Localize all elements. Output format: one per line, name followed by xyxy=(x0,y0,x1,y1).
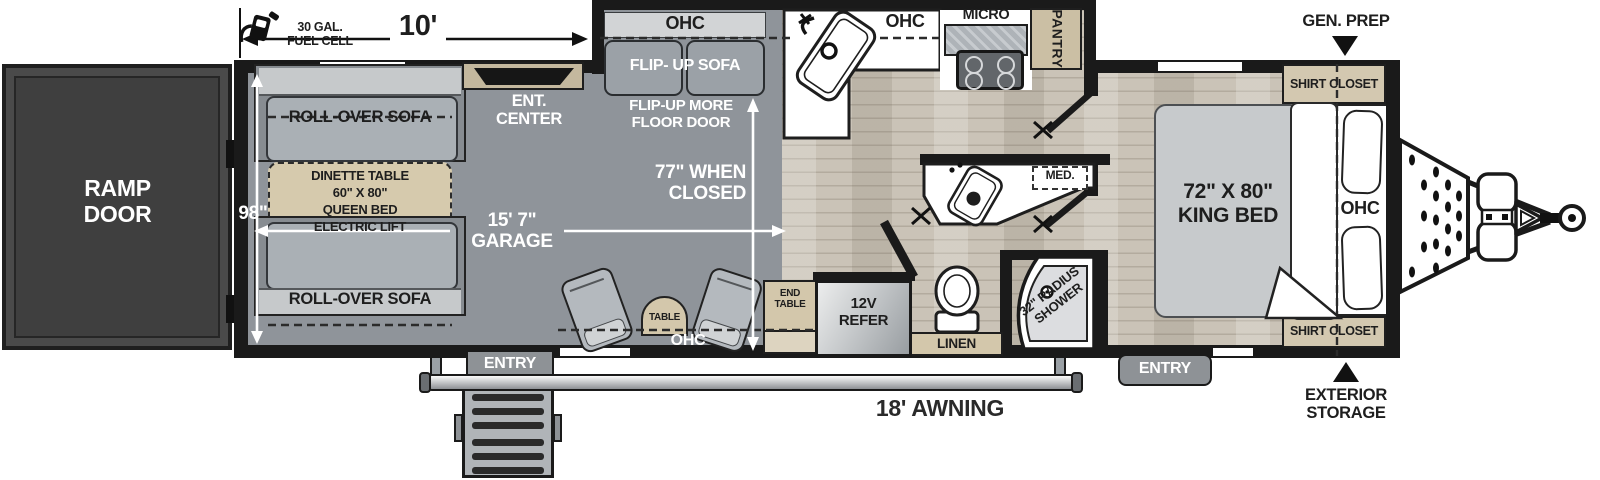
refer-label: 12V REFER xyxy=(815,296,912,330)
entry-bedroom-label: ENTRY xyxy=(1118,360,1212,378)
end-table-label: END TABLE xyxy=(763,288,817,310)
kitchen-ohc-label: OHC xyxy=(876,11,934,31)
shirt-closet-bottom-label: SHIRT CLOSET xyxy=(1282,324,1386,338)
dinette-label: DINETTE TABLE 60" X 80" QUEEN BED ELECTR… xyxy=(270,168,450,236)
dim-garage-label: 15' 7" GARAGE xyxy=(452,210,572,253)
table-label: TABLE xyxy=(642,312,687,323)
ent-center-label: ENT. CENTER xyxy=(464,92,594,129)
gen-prep-arrow-icon xyxy=(1332,36,1358,56)
rollover-sofa-top-label: ROLL-OVER SOFA xyxy=(276,108,444,126)
dim-10ft-label: 10' xyxy=(392,10,444,42)
fuel-cell-label: 30 GAL. FUEL CELL xyxy=(272,20,368,48)
floorplan-canvas: PANTRY xyxy=(0,0,1600,480)
micro-label: MICRO xyxy=(944,7,1028,23)
bed-fold xyxy=(1266,268,1340,318)
bedroom-ohc-label: OHC xyxy=(1334,198,1386,218)
king-bed-label: 72" X 80" KING BED xyxy=(1158,180,1298,227)
dim-98in-label: 98" xyxy=(231,203,275,224)
ramp-door-label: RAMP DOOR xyxy=(60,176,175,228)
exterior-storage-arrow-icon xyxy=(1333,362,1359,382)
exterior-storage-label: EXTERIOR STORAGE xyxy=(1294,386,1398,423)
shirt-closet-top-label: SHIRT CLOSET xyxy=(1282,77,1386,91)
awning-label: 18' AWNING xyxy=(855,396,1025,422)
med-label: MED. xyxy=(1032,169,1088,182)
linen-label: LINEN xyxy=(910,336,1003,351)
flip-up-sofa-label: FLIP- UP SOFA xyxy=(604,57,766,75)
dim-closed-label: 77" WHEN CLOSED xyxy=(640,162,746,205)
rollover-sofa-bottom-label: ROLL-OVER SOFA xyxy=(276,290,444,308)
gen-prep-label: GEN. PREP xyxy=(1296,12,1396,30)
entry-garage-label: ENTRY xyxy=(466,355,554,373)
flip-up-ohc-label: OHC xyxy=(604,13,766,33)
flip-up-more-label: FLIP-UP MORE FLOOR DOOR xyxy=(606,98,756,132)
living-ohc-label: OHC xyxy=(656,332,720,350)
